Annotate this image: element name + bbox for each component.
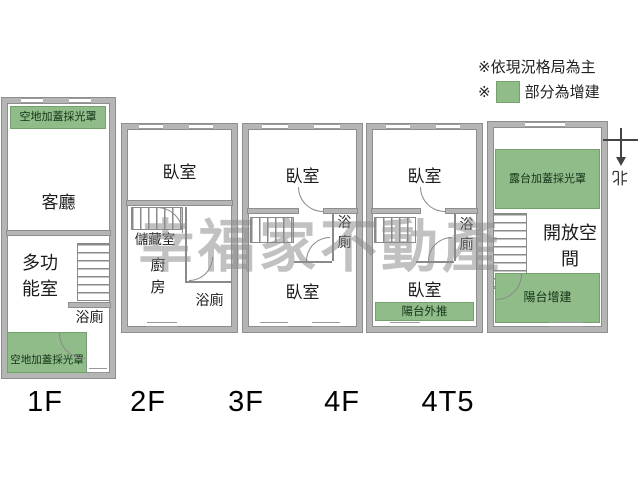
canopy-top-area-1f: 空地加蓋採光罩 (10, 106, 106, 129)
partition-line (332, 213, 334, 261)
north-label: 北 (612, 167, 628, 191)
bedroom-bottom-label-4f: 臥室 (408, 279, 442, 304)
balcony-label-4t5: 陽台增建 (523, 291, 571, 304)
bath-label-1f: 浴廁 (69, 308, 110, 328)
bedroom-label-2f: 臥室 (163, 161, 197, 186)
staircase-1f (77, 243, 110, 301)
bedroom-top-label-3f: 臥室 (286, 165, 320, 190)
plan-4t5: 露台加蓋採光罩 開放空間 陽台增建 (488, 122, 607, 332)
legend: ※依現況格局為主 ※ 部分為增建 (478, 54, 600, 104)
window-marker (436, 124, 460, 129)
floor-label-4t5: 4T5 (422, 386, 475, 419)
north-arrow-stem (620, 128, 622, 158)
multi-room-label: 多功能室 (17, 251, 63, 303)
window-marker (21, 98, 43, 103)
window-marker (312, 322, 340, 327)
floor-label-3f: 3F (228, 386, 264, 419)
balcony-area-4f: 陽台外推 (375, 302, 474, 321)
floor-label-4f: 4F (324, 386, 360, 419)
window-marker (147, 322, 177, 327)
partition-line (185, 281, 232, 283)
addition-green-swatch (496, 81, 520, 103)
interior-wall (372, 209, 420, 213)
balcony-label-4f: 陽台外推 (402, 305, 448, 318)
legend-note-2-prefix: ※ (478, 83, 491, 101)
north-arrow-head-icon (616, 157, 626, 166)
window-marker (89, 368, 107, 373)
floorplan-image: ※依現況格局為主 ※ 部分為增建 幸福家不動產 空地加蓋採光罩 客廳 多功能室 … (0, 0, 640, 480)
plan-3f: 臥室 浴廁 臥室 (243, 124, 362, 332)
window-marker (525, 122, 565, 127)
window-marker (549, 322, 583, 327)
interior-wall (446, 209, 477, 213)
plan-1f: 空地加蓋採光罩 客廳 多功能室 浴廁 空地加蓋採光罩 (2, 98, 115, 378)
floor-label-1f: 1F (27, 386, 63, 419)
canopy-top-label-1f: 空地加蓋採光罩 (20, 111, 97, 123)
kitchen-label: 廚房 (149, 255, 167, 299)
window-marker (390, 322, 420, 327)
door-arc (428, 237, 452, 261)
canopy-bottom-label-1f: 空地加蓋採光罩 (10, 355, 84, 367)
window-marker (260, 322, 288, 327)
plan-2f: 臥室 儲藏室 廚房 浴廁 (122, 124, 237, 332)
bedroom-bottom-label-3f: 臥室 (286, 281, 320, 306)
window-marker (69, 98, 91, 103)
terrace-area-4t5: 露台加蓋採光罩 (495, 149, 600, 209)
bath-label-3f: 浴廁 (336, 213, 353, 254)
window-marker (262, 124, 288, 129)
partition-line (416, 261, 454, 263)
north-arrow: 北 (600, 126, 640, 198)
storage-label: 儲藏室 (127, 231, 183, 251)
interior-wall (7, 231, 110, 235)
legend-note-2-text: 部分為增建 (525, 81, 600, 102)
floor-label-2f: 2F (130, 386, 166, 419)
open-space-label: 開放空間 (539, 221, 601, 273)
staircase-3f (250, 217, 294, 243)
partition-line (185, 207, 187, 283)
door-arc (298, 187, 323, 212)
legend-note-2: ※ 部分為增建 (478, 79, 600, 104)
window-marker (139, 124, 163, 129)
partition-line (294, 261, 332, 263)
staircase-4f (374, 217, 416, 243)
door-arc (189, 257, 213, 281)
interior-wall (127, 201, 232, 205)
plan-4f: 臥室 浴廁 臥室 陽台外推 (367, 124, 482, 332)
bedroom-top-label-4f: 臥室 (408, 165, 442, 190)
bath-label-2f: 浴廁 (187, 291, 232, 311)
door-arc (420, 187, 445, 212)
window-marker (189, 124, 213, 129)
interior-wall (69, 303, 110, 307)
door-arc (306, 237, 330, 261)
terrace-label-4t5: 露台加蓋採光罩 (509, 173, 586, 185)
living-room-label: 客廳 (42, 191, 76, 216)
window-marker (314, 124, 340, 129)
partition-line (454, 213, 456, 261)
interior-wall (248, 209, 298, 213)
bath-label-4f: 浴廁 (458, 215, 475, 256)
window-marker (386, 124, 410, 129)
legend-note-1-text: ※依現況格局為主 (478, 56, 596, 77)
legend-note-1: ※依現況格局為主 (478, 54, 600, 79)
